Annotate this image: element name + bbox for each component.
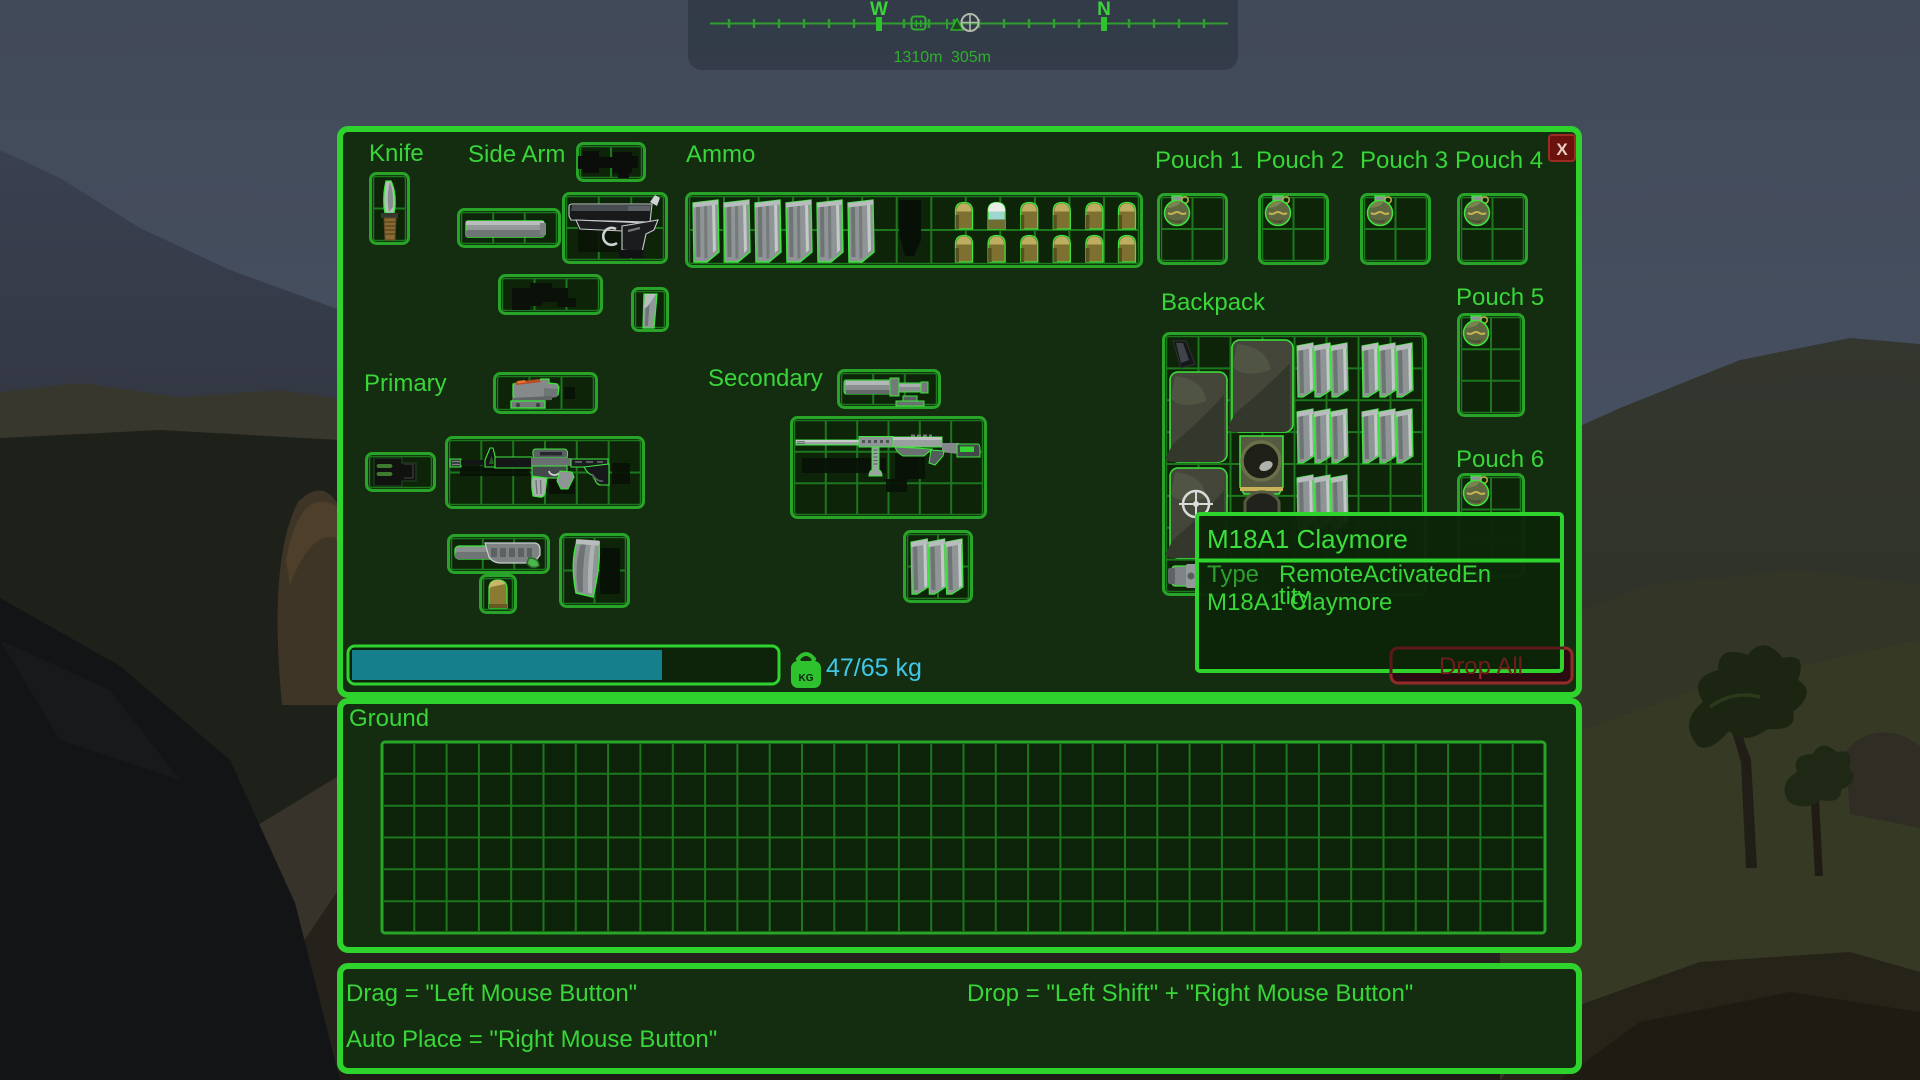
svg-text:Primary: Primary bbox=[364, 370, 447, 397]
svg-text:X: X bbox=[1556, 140, 1568, 159]
svg-text:M18A1 Claymore: M18A1 Claymore bbox=[1207, 589, 1392, 616]
svg-text:Pouch 1: Pouch 1 bbox=[1155, 147, 1243, 174]
svg-text:Pouch 4: Pouch 4 bbox=[1455, 147, 1543, 174]
svg-text:Auto Place = "Right Mouse Butt: Auto Place = "Right Mouse Button" bbox=[346, 1026, 717, 1053]
svg-text:Knife: Knife bbox=[369, 140, 424, 167]
svg-text:1310m: 1310m bbox=[894, 49, 943, 66]
svg-text:M18A1 Claymore: M18A1 Claymore bbox=[1207, 524, 1408, 554]
svg-text:Ammo: Ammo bbox=[686, 141, 755, 168]
svg-text:Pouch 3: Pouch 3 bbox=[1360, 147, 1448, 174]
svg-text:47/65 kg: 47/65 kg bbox=[826, 654, 922, 682]
svg-text:Backpack: Backpack bbox=[1161, 289, 1266, 316]
svg-text:RemoteActivatedEn: RemoteActivatedEn bbox=[1279, 561, 1491, 588]
svg-text:Pouch 6: Pouch 6 bbox=[1456, 446, 1544, 473]
svg-text:Secondary: Secondary bbox=[708, 365, 823, 392]
svg-text:W: W bbox=[870, 0, 888, 20]
svg-text:Pouch 2: Pouch 2 bbox=[1256, 147, 1344, 174]
svg-text:Side Arm: Side Arm bbox=[468, 141, 565, 168]
svg-text:N: N bbox=[1097, 0, 1111, 20]
svg-text:Drag = "Left Mouse Button": Drag = "Left Mouse Button" bbox=[346, 980, 637, 1007]
svg-text:Drop = "Left Shift" + "Right M: Drop = "Left Shift" + "Right Mouse Butto… bbox=[967, 980, 1413, 1007]
svg-text:H: H bbox=[915, 19, 922, 30]
svg-text:Ground: Ground bbox=[349, 705, 429, 732]
svg-text:305m: 305m bbox=[951, 49, 991, 66]
svg-text:Type: Type bbox=[1207, 561, 1259, 588]
svg-text:Pouch 5: Pouch 5 bbox=[1456, 284, 1544, 311]
svg-text:KG: KG bbox=[799, 673, 814, 684]
